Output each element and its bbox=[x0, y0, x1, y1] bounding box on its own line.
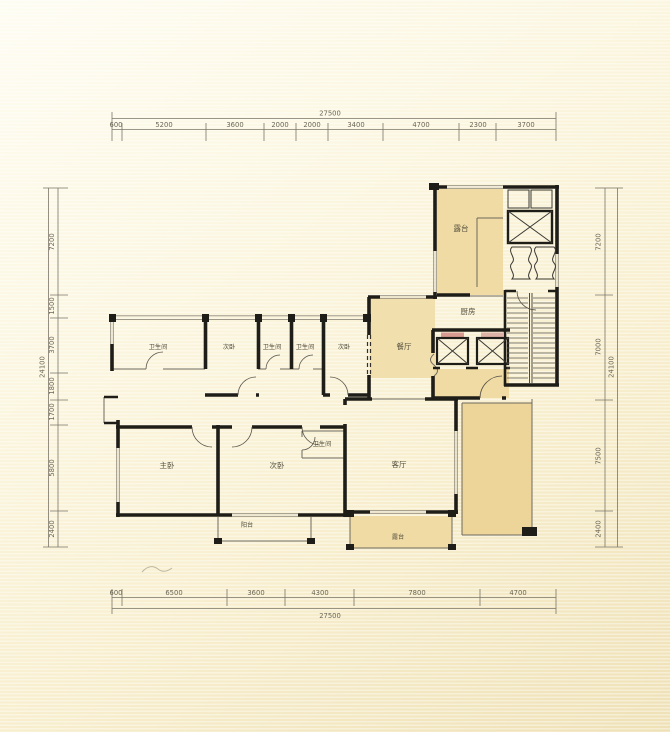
terrace-top-area bbox=[437, 189, 503, 295]
pencil-mark bbox=[142, 567, 172, 572]
room-label-living: 客厅 bbox=[392, 459, 407, 469]
dim-label: 5800 bbox=[48, 459, 56, 476]
room-label-bath-4: 卫生间 bbox=[313, 440, 332, 448]
dim-label: 6500 bbox=[165, 589, 182, 597]
dim-label: 1800 bbox=[48, 377, 56, 394]
door-arc bbox=[517, 291, 536, 310]
dim-label: 3600 bbox=[226, 121, 243, 129]
machine-room bbox=[531, 190, 552, 208]
room-label-kitchen: 厨房 bbox=[461, 306, 476, 316]
stairs bbox=[507, 293, 555, 383]
room-label-terrace-bottom: 露台 bbox=[392, 533, 404, 541]
dim-label: 4700 bbox=[412, 121, 429, 129]
dim-bottom-total: 27500 bbox=[319, 612, 341, 620]
dim-top-total: 27500 bbox=[319, 110, 341, 118]
room-label-terrace-top: 露台 bbox=[454, 223, 469, 233]
dim-label: 7200 bbox=[595, 233, 603, 250]
elevator bbox=[477, 333, 508, 365]
elevator-shaft bbox=[508, 211, 552, 243]
dim-label: 600 bbox=[110, 589, 123, 597]
dim-label: 4700 bbox=[509, 589, 526, 597]
room-label-bed-2: 次卧 bbox=[338, 343, 350, 351]
dim-label: 5200 bbox=[155, 121, 172, 129]
dim-label: 3700 bbox=[517, 121, 534, 129]
flue bbox=[511, 247, 532, 279]
flue bbox=[535, 247, 556, 279]
dim-label: 2000 bbox=[271, 121, 288, 129]
terrace-right-area bbox=[462, 403, 532, 535]
dim-label: 7000 bbox=[595, 338, 603, 355]
room-label-balcony: 阳台 bbox=[241, 521, 253, 529]
dim-label: 1700 bbox=[48, 403, 56, 420]
terrace-bottom-area bbox=[350, 516, 452, 548]
door-arc bbox=[232, 427, 252, 447]
dim-label: 2400 bbox=[48, 520, 56, 537]
dim-label: 2300 bbox=[469, 121, 486, 129]
floor-plan: 露台 厨房 餐厅 卫生间 次卧 卫生间 卫生间 次卧 主卧 次卧 卫生间 客厅 … bbox=[0, 0, 670, 732]
door-arc bbox=[266, 355, 280, 369]
dim-label: 4300 bbox=[311, 589, 328, 597]
machine-room bbox=[508, 190, 529, 208]
dim-label: 3700 bbox=[48, 336, 56, 353]
dim-label: 7500 bbox=[595, 447, 603, 464]
room-label-bath-1: 卫生间 bbox=[149, 343, 168, 351]
dim-label: 3400 bbox=[347, 121, 364, 129]
door-arc bbox=[192, 427, 212, 447]
room-label-bath-3: 卫生间 bbox=[296, 343, 315, 351]
dining-area bbox=[370, 298, 435, 378]
dim-left-total: 24100 bbox=[39, 356, 47, 378]
room-label-bath-2: 卫生间 bbox=[263, 343, 282, 351]
room-label-master: 主卧 bbox=[160, 460, 175, 470]
door-arc bbox=[330, 377, 348, 395]
room-label-bed-1: 次卧 bbox=[223, 343, 235, 351]
dim-label: 600 bbox=[110, 121, 123, 129]
dim-label: 7200 bbox=[48, 233, 56, 250]
door-arc bbox=[146, 352, 163, 369]
dim-label: 1500 bbox=[48, 297, 56, 314]
door-arc bbox=[238, 377, 256, 395]
dim-label: 2000 bbox=[303, 121, 320, 129]
door-arc bbox=[299, 355, 313, 369]
dim-right-total: 24100 bbox=[608, 356, 616, 378]
dim-label: 2400 bbox=[595, 520, 603, 537]
room-label-bed-3: 次卧 bbox=[270, 460, 285, 470]
room-labels: 露台 厨房 餐厅 卫生间 次卧 卫生间 卫生间 次卧 主卧 次卧 卫生间 客厅 … bbox=[149, 223, 476, 541]
elevator bbox=[437, 333, 468, 365]
entry-lobby-area bbox=[434, 369, 509, 398]
dim-label: 3600 bbox=[247, 589, 264, 597]
dim-label: 7800 bbox=[408, 589, 425, 597]
room-label-dining: 餐厅 bbox=[397, 342, 412, 351]
